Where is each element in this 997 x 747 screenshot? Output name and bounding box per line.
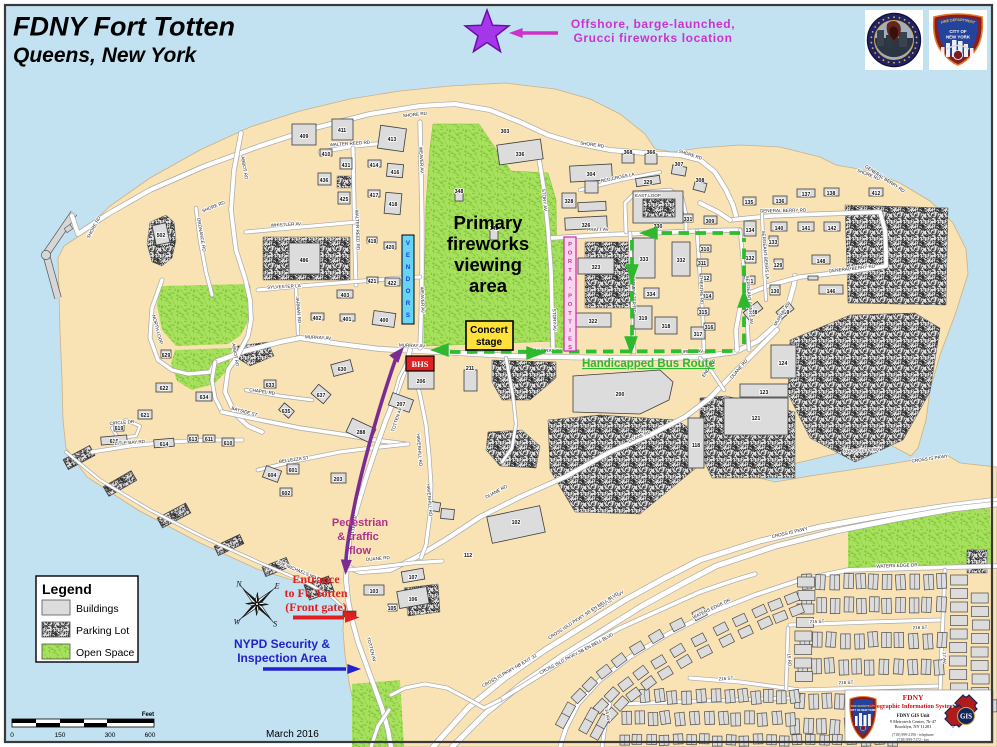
svg-text:132: 132	[746, 256, 755, 262]
svg-text:414: 414	[370, 163, 379, 169]
svg-text:315: 315	[699, 310, 708, 316]
svg-text:Parking Lot: Parking Lot	[76, 625, 129, 637]
svg-text:417: 417	[370, 193, 379, 199]
svg-text:602: 602	[282, 491, 291, 497]
svg-text:CITY OF: CITY OF	[949, 29, 967, 34]
svg-text:332: 332	[677, 258, 686, 264]
svg-text:N: N	[406, 264, 411, 271]
svg-text:146: 146	[827, 289, 836, 295]
svg-text:129: 129	[774, 263, 783, 269]
svg-text:to Ft. Totten: to Ft. Totten	[285, 586, 348, 600]
svg-text:600: 600	[145, 732, 156, 739]
svg-text:R: R	[406, 300, 411, 307]
svg-text:Legend: Legend	[42, 581, 92, 597]
svg-text:402: 402	[313, 316, 322, 322]
svg-text:328: 328	[565, 199, 574, 205]
svg-text:436: 436	[320, 178, 329, 184]
svg-text:E: E	[274, 581, 280, 590]
svg-text:flow: flow	[349, 545, 371, 557]
svg-text:121: 121	[752, 416, 761, 422]
svg-text:331: 331	[684, 217, 693, 223]
svg-text:318: 318	[662, 324, 671, 330]
svg-text:138: 138	[827, 191, 836, 197]
svg-text:348: 348	[455, 189, 464, 195]
svg-text:216 ST: 216 ST	[912, 625, 927, 631]
svg-text:T: T	[568, 319, 572, 325]
svg-text:621: 621	[141, 413, 150, 419]
svg-text:142: 142	[828, 226, 837, 232]
svg-text:413: 413	[388, 137, 397, 143]
svg-text:133: 133	[769, 240, 778, 246]
svg-text:150: 150	[55, 732, 66, 739]
svg-text:Handicapped Bus Route: Handicapped Bus Route	[582, 358, 715, 370]
svg-text:FDNY: FDNY	[903, 693, 924, 702]
svg-text:329: 329	[644, 180, 653, 186]
svg-text:Offshore, barge-launched,: Offshore, barge-launched,	[571, 17, 735, 31]
svg-text:304: 304	[587, 172, 596, 178]
svg-text:336: 336	[516, 152, 525, 158]
svg-text:GENERAL BERRY RD: GENERAL BERRY RD	[760, 208, 807, 214]
svg-text:E: E	[406, 252, 410, 259]
svg-text:P: P	[568, 294, 572, 300]
svg-text:215 ST: 215 ST	[809, 619, 824, 625]
svg-text:134: 134	[746, 228, 755, 234]
svg-text:311: 311	[698, 261, 706, 267]
svg-text:103: 103	[370, 589, 379, 595]
svg-text:T: T	[568, 311, 572, 317]
svg-text:123: 123	[760, 390, 769, 396]
svg-text:NEW YORK: NEW YORK	[946, 35, 971, 40]
svg-text:416: 416	[391, 170, 400, 176]
svg-text:613: 613	[189, 437, 198, 443]
svg-text:216 ST: 216 ST	[718, 676, 733, 682]
svg-text:141: 141	[802, 226, 811, 232]
svg-text:308: 308	[696, 178, 705, 184]
svg-text:EAST LOOP: EAST LOOP	[635, 193, 661, 198]
svg-text:124: 124	[779, 361, 788, 367]
svg-text:633: 633	[266, 383, 275, 389]
svg-text:WEAVER AV: WEAVER AV	[420, 287, 426, 314]
svg-text:323: 323	[592, 265, 601, 271]
svg-text:419: 419	[368, 239, 377, 245]
svg-text:Geographic Information Systems: Geographic Information Systems	[869, 703, 957, 710]
svg-text:PRATT AV: PRATT AV	[587, 227, 609, 232]
svg-text:GIS: GIS	[960, 713, 972, 721]
svg-text:140: 140	[775, 226, 784, 232]
svg-text:604: 604	[268, 473, 277, 479]
svg-text:135: 135	[745, 200, 754, 206]
svg-text:611: 611	[205, 437, 213, 443]
svg-text:Inspection Area: Inspection Area	[237, 651, 327, 665]
svg-text:368: 368	[624, 150, 633, 156]
svg-text:O: O	[406, 288, 411, 295]
svg-text:Primary: Primary	[454, 212, 524, 233]
svg-text:403: 403	[341, 293, 350, 299]
svg-text:211: 211	[466, 366, 474, 372]
svg-text:614: 614	[160, 442, 169, 448]
svg-text:309: 309	[706, 219, 715, 225]
svg-text:107: 107	[409, 575, 418, 581]
svg-text:486: 486	[300, 258, 309, 264]
svg-text:629: 629	[162, 353, 171, 359]
svg-text:N: N	[977, 726, 982, 732]
svg-text:630: 630	[338, 367, 347, 373]
svg-text:S: S	[273, 620, 277, 629]
svg-text:401: 401	[343, 317, 352, 323]
svg-text:319: 319	[639, 316, 648, 322]
svg-text:317: 317	[694, 332, 703, 338]
svg-text:(718) 999-2190 - telephone: (718) 999-2190 - telephone	[892, 733, 934, 737]
svg-text:316: 316	[705, 325, 714, 331]
svg-text:322: 322	[589, 319, 598, 325]
svg-text:& traffic: & traffic	[337, 531, 379, 543]
svg-text:601: 601	[289, 468, 298, 474]
svg-text:635: 635	[282, 409, 291, 415]
svg-text:136: 136	[776, 199, 785, 205]
svg-text:206: 206	[417, 379, 426, 385]
svg-text:431: 431	[342, 163, 351, 169]
svg-text:FDNY Fort Totten: FDNY Fort Totten	[13, 12, 235, 42]
svg-text:333: 333	[640, 257, 649, 263]
svg-text:-: -	[569, 285, 571, 291]
svg-text:105: 105	[388, 606, 397, 612]
svg-text:634: 634	[200, 395, 209, 401]
svg-text:303: 303	[501, 129, 510, 135]
svg-text:400: 400	[380, 318, 389, 324]
svg-text:D: D	[951, 726, 956, 732]
svg-text:412: 412	[872, 191, 881, 197]
svg-text:106: 106	[409, 597, 418, 603]
svg-text:366: 366	[647, 150, 656, 156]
svg-text:O: O	[568, 251, 573, 257]
svg-text:area: area	[469, 275, 508, 296]
svg-text:Pedestrian: Pedestrian	[332, 517, 389, 529]
svg-text:619: 619	[115, 426, 124, 432]
svg-text:F: F	[951, 704, 955, 710]
svg-text:418: 418	[389, 202, 398, 208]
svg-text:STORY AV: STORY AV	[552, 309, 558, 332]
svg-text:216 ST: 216 ST	[838, 680, 853, 686]
svg-text:148: 148	[817, 259, 826, 265]
svg-text:118: 118	[692, 443, 700, 449]
svg-text:130: 130	[771, 289, 780, 295]
svg-text:O: O	[568, 302, 573, 308]
svg-text:D: D	[406, 276, 411, 283]
svg-text:Concert: Concert	[470, 325, 508, 336]
svg-text:(Front gate): (Front gate)	[285, 600, 346, 614]
svg-text:203: 203	[334, 477, 343, 483]
svg-text:N: N	[235, 579, 242, 588]
svg-text:NYPD Security &: NYPD Security &	[234, 637, 330, 651]
svg-text:420: 420	[386, 245, 395, 251]
svg-text:17 AV: 17 AV	[942, 652, 948, 665]
svg-text:Open Space: Open Space	[76, 647, 135, 659]
svg-text:411: 411	[338, 128, 346, 134]
svg-text:THEATRE RD: THEATRE RD	[698, 275, 704, 305]
svg-text:fireworks: fireworks	[447, 233, 529, 254]
svg-text:310: 310	[701, 247, 710, 253]
svg-text:334: 334	[647, 292, 656, 298]
svg-text:502: 502	[157, 233, 166, 239]
svg-text:610: 610	[224, 441, 233, 447]
svg-text:E: E	[568, 337, 572, 343]
svg-text:stage: stage	[476, 337, 503, 348]
svg-text:409: 409	[300, 134, 309, 140]
svg-text:288: 288	[357, 430, 366, 436]
svg-text:S: S	[406, 312, 410, 319]
svg-text:March 2016: March 2016	[266, 729, 319, 740]
svg-text:410: 410	[322, 152, 331, 158]
svg-text:P: P	[568, 242, 572, 248]
svg-text:421: 421	[368, 279, 377, 285]
svg-text:425: 425	[340, 197, 349, 203]
svg-text:viewing: viewing	[454, 254, 522, 275]
svg-text:S: S	[568, 345, 572, 351]
svg-text:Buildings: Buildings	[76, 603, 119, 615]
svg-text:300: 300	[105, 732, 116, 739]
svg-text:102: 102	[512, 520, 521, 526]
svg-text:BHS: BHS	[411, 359, 428, 369]
svg-text:Entrance: Entrance	[292, 572, 340, 586]
svg-text:0: 0	[10, 732, 14, 739]
svg-text:422: 422	[388, 281, 397, 287]
svg-text:T: T	[568, 268, 572, 274]
svg-text:637: 637	[317, 393, 326, 399]
svg-text:Grucci fireworks location: Grucci fireworks location	[573, 31, 732, 45]
svg-text:200: 200	[616, 392, 625, 398]
svg-text:G: G	[977, 704, 982, 710]
svg-text:112: 112	[464, 553, 472, 559]
svg-text:307: 307	[675, 162, 684, 168]
svg-text:137: 137	[802, 192, 811, 198]
svg-text:622: 622	[160, 386, 169, 392]
svg-text:Feet: Feet	[142, 712, 154, 718]
svg-text:Queens, New York: Queens, New York	[13, 44, 198, 67]
